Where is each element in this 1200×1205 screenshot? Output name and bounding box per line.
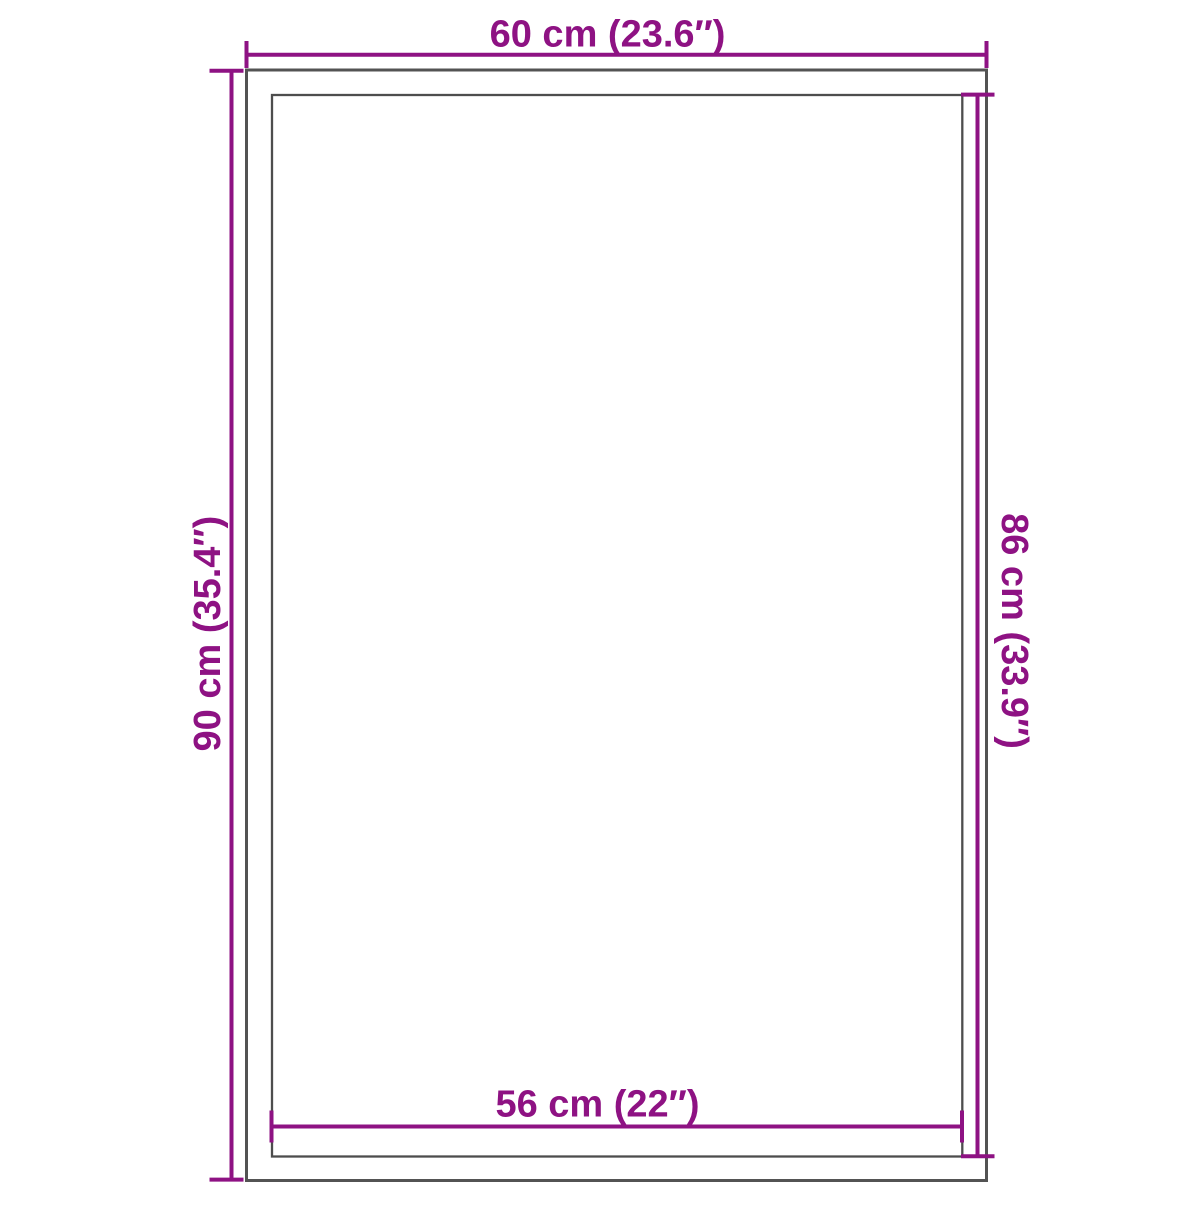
svg-text:60 cm (23.6″): 60 cm (23.6″) bbox=[490, 14, 726, 56]
svg-text:86 cm (33.9″): 86 cm (33.9″) bbox=[993, 513, 1035, 749]
svg-text:90 cm (35.4″): 90 cm (35.4″) bbox=[187, 516, 229, 752]
svg-text:56 cm (22″): 56 cm (22″) bbox=[495, 1084, 699, 1126]
